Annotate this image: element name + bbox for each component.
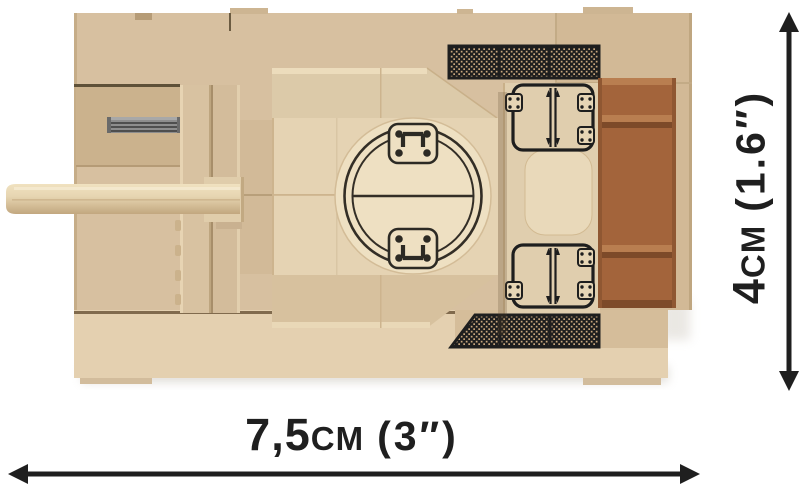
grille-cell <box>449 46 499 78</box>
grille-cell <box>500 315 550 347</box>
engine-grille-bottom <box>451 315 599 347</box>
hull-rear-tab <box>583 378 661 385</box>
width-dimension-label: 7,5CM(3″) <box>245 412 459 457</box>
product-dimension-figure: 7,5CM(3″) 4CM(1.6″) <box>0 0 800 488</box>
height-value: 4 <box>724 278 775 304</box>
height-unit: CM <box>735 225 772 278</box>
grille-cell <box>499 46 549 78</box>
hatch-hinge <box>578 282 594 299</box>
hatch-hinge <box>578 127 594 144</box>
width-unit: CM <box>311 420 364 457</box>
rear-rounded-plate <box>525 150 592 235</box>
brown-stowage-block <box>598 78 676 308</box>
turret <box>240 68 507 335</box>
height-dimension-arrow <box>779 12 799 391</box>
hatch-hinge-print-top <box>389 124 437 163</box>
engine-grille-top <box>449 46 599 78</box>
hatch-hinge-print-bottom <box>389 229 437 268</box>
arrowhead-bottom <box>779 371 799 391</box>
arrowhead-top <box>779 12 799 32</box>
grille-cell <box>550 315 599 347</box>
arrowhead-left <box>8 464 28 484</box>
width-value: 7,5 <box>245 409 311 460</box>
hatch-hinge <box>578 94 594 111</box>
turret-side-plate <box>240 120 274 274</box>
turret-hatch-disc <box>335 118 491 274</box>
gray-rod-detail <box>107 117 181 133</box>
hatch-hinge <box>506 282 522 299</box>
width-imperial: (3″) <box>377 413 459 459</box>
arrowhead-right <box>680 464 700 484</box>
width-dimension-arrow <box>8 464 700 484</box>
hatch-hinge <box>578 249 594 266</box>
height-dimension-label: 4CM(1.6″) <box>727 90 772 304</box>
grille-cell <box>549 46 599 78</box>
hatch-hinge <box>506 94 522 111</box>
hull-front-tab <box>80 378 152 384</box>
height-imperial: (1.6″) <box>728 90 774 212</box>
